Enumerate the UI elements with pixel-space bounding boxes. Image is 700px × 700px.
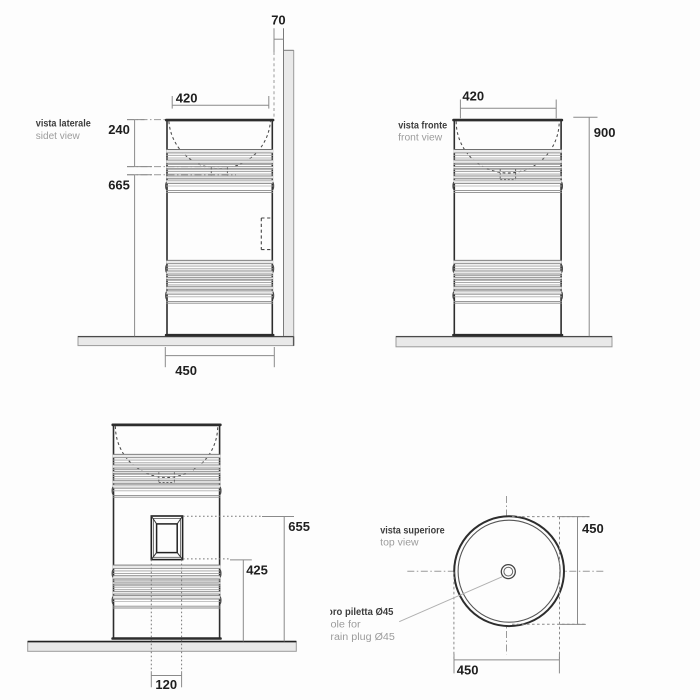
svg-text:420: 420 bbox=[462, 88, 484, 103]
svg-text:240: 240 bbox=[108, 122, 130, 137]
svg-text:foro piletta Ø45: foro piletta Ø45 bbox=[324, 607, 394, 618]
svg-text:front view: front view bbox=[398, 133, 443, 144]
svg-text:vista superiore: vista superiore bbox=[380, 526, 445, 537]
svg-text:top view: top view bbox=[380, 538, 419, 549]
svg-text:450: 450 bbox=[175, 363, 197, 378]
svg-text:900: 900 bbox=[594, 125, 616, 140]
svg-text:drain plug Ø45: drain plug Ø45 bbox=[324, 632, 395, 643]
svg-text:vista fronte: vista fronte bbox=[398, 120, 448, 131]
svg-text:70: 70 bbox=[271, 12, 285, 27]
svg-text:450: 450 bbox=[582, 521, 604, 536]
svg-text:425: 425 bbox=[246, 562, 268, 577]
svg-text:655: 655 bbox=[288, 519, 310, 534]
svg-text:420: 420 bbox=[176, 91, 198, 106]
svg-text:vista laterale: vista laterale bbox=[36, 118, 92, 129]
svg-text:sidet view: sidet view bbox=[36, 131, 81, 142]
svg-text:120: 120 bbox=[155, 677, 177, 692]
svg-text:665: 665 bbox=[108, 177, 130, 192]
svg-text:450: 450 bbox=[457, 663, 479, 678]
